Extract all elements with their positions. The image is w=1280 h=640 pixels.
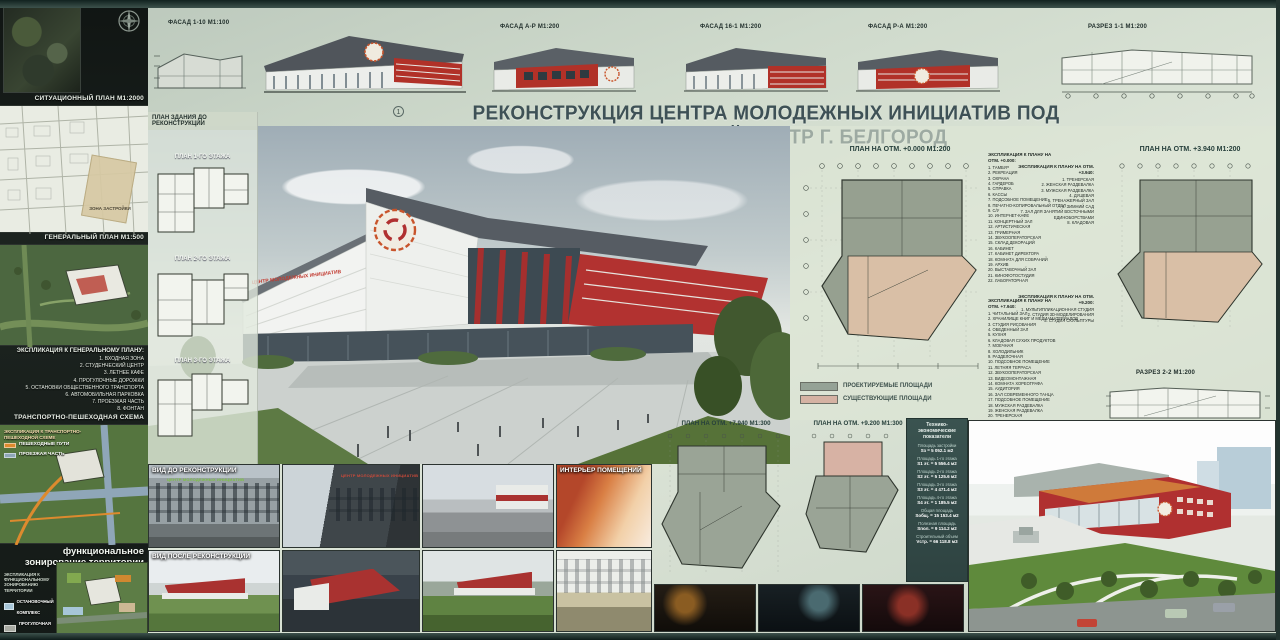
explication-3940-title: ЭКСПЛИКАЦИЯ К ПЛАНУ НА ОТМ. +3.940: [1018, 164, 1094, 175]
genplan-explication-item: 4. ПРОГУЛОЧНЫЕ ДОРОЖКИ [4, 378, 144, 385]
tech-indicator-row: Площадь 4-го этажаS4 эт. = 1 185.5 м2 [909, 495, 965, 506]
zoning-map [56, 562, 148, 636]
facade-1-10-label: ФАСАД 1-10 М1:100 [168, 20, 229, 26]
zoning-drawing [57, 563, 147, 635]
genplan-drawing [0, 245, 148, 347]
explication-3940-item: 7. ЗАЛ ДЛЯ ЗАНЯТИЙ ВОСТОЧНЫМИ ЕДИНОБОРСТ… [1018, 209, 1094, 220]
floor1-plan-drawing [155, 164, 251, 244]
situational-plan-map: ЗОНА ЗАСТРОЙКИ [0, 105, 148, 233]
sidebar: СИТУАЦИОННЫЙ ПЛАН М1:2000 ЗОНА ЗАСТРОЙКИ… [0, 0, 148, 640]
genplan-explication: ЭКСПЛИКАЦИЯ К ГЕНЕРАЛЬНОМУ ПЛАНУ: 1. ВХО… [4, 348, 144, 414]
tech-indicators-title: Технико-экономические показатели [909, 422, 965, 440]
transport-scheme-map: ЭКСПЛИКАЦИЯ К ТРАНСПОРТНО-ПЕШЕХОДНОЙ СХЕ… [0, 424, 148, 544]
aerial-render-drawing [969, 421, 1275, 631]
zoning-legend-title: ЭКСПЛИКАЦИЯ К ФУНКЦИОНАЛЬНОМУ ЗОНИРОВАНИ… [4, 572, 56, 593]
before-label: ВИД ДО РЕКОНСТРУКЦИИ [152, 467, 237, 474]
photo-after-1: ВИД ПОСЛЕ РЕКОНСТРУКЦИИ [148, 550, 280, 632]
plan-9200-drawing [798, 430, 906, 570]
plan-3940-label: ПЛАН НА ОТМ. +3.940 М1:200 [1110, 146, 1270, 153]
photo-interior-bar-2 [758, 584, 860, 632]
building-base [162, 593, 248, 599]
facade-a-r-label: ФАСАД А-Р М1:200 [500, 24, 559, 30]
situational-plan-title: СИТУАЦИОННЫЙ ПЛАН М1:2000 [0, 95, 144, 102]
genplan-map [0, 244, 148, 346]
site-zone-label: ЗОНА ЗАСТРОЙКИ [84, 206, 136, 211]
area-legend-item: СУЩЕСТВУЮЩИЕ ПЛОЩАДИ [800, 393, 932, 406]
photo-interior-2 [556, 550, 652, 632]
tech-indicator-row: Полезная площадьSпол. = 9 114.2 м2 [909, 521, 965, 532]
floor1-label: ПЛАН 1-ГО ЭТАЖА [148, 154, 257, 160]
genplan-explication-item: 5. ОСТАНОВКИ ОБЩЕСТВЕННОГО ТРАНСПОРТА [4, 385, 144, 392]
photo-interior-bar-1 [654, 584, 756, 632]
legend-swatch [4, 625, 16, 632]
area-legend-list: ПРОЕКТИРУЕМЫЕ ПЛОЩАДИСУЩЕСТВУЮЩИЕ ПЛОЩАД… [800, 380, 932, 406]
explication-7940: ЭКСПЛИКАЦИЯ К ПЛАНУ НА ОТМ. +7.940: 1. Ч… [988, 298, 1062, 419]
tech-indicator-row: Площадь 3-го этажаS3 эт. = 4 471.4 м2 [909, 482, 965, 493]
transport-legend-title: ЭКСПЛИКАЦИЯ К ТРАНСПОРТНО-ПЕШЕХОДНОЙ СХЕ… [4, 429, 96, 440]
satellite-photo [3, 5, 81, 93]
legend-label: ПРОЕКТИРУЕМЫЕ ПЛОЩАДИ [843, 380, 932, 393]
explication-3940-list: 1. ТРЕНЕРСКАЯ2. ЖЕНСКАЯ РАЗДЕВАЛКА3. МУЖ… [1018, 177, 1094, 226]
section-1-1-label: РАЗРЕЗ 1-1 М1:200 [1088, 24, 1147, 30]
building-sign-text: ЦЕНТР МОЛОДЕЖНЫХ ИНИЦИАТИВ [341, 473, 418, 478]
red-band [496, 495, 548, 502]
photo-after-2 [282, 550, 420, 632]
transport-legend-list: ПЕШЕХОДНЫЕ ПУТИПРОЕЗЖАЯ ЧАСТЬ [4, 440, 96, 460]
floor2-plan-drawing [155, 266, 251, 346]
facade-a-r-drawing [486, 40, 642, 98]
floor3-label: ПЛАН 3-ГО ЭТАЖА [148, 358, 257, 364]
board-frame-bottom [0, 633, 1280, 640]
explication-7940-item: 2. ХРАНИЛИЩЕ КНИГ И МЕДИАМАТЕРИАЛОВ [988, 316, 1062, 321]
explication-0000-title: ЭКСПЛИКАЦИЯ К ПЛАНУ НА ОТМ. +0.000: [988, 152, 1062, 163]
building-shape [294, 583, 329, 610]
indicator-value: S3 эт. = 4 471.4 м2 [909, 487, 965, 493]
legend-label: ПЕШЕХОДНЫЕ ПУТИ [19, 440, 69, 450]
section-1-1-drawing [1052, 38, 1274, 102]
board-frame-right [1276, 0, 1280, 640]
facade-main-drawing [254, 26, 472, 104]
explication-7940-item: 20. ТРЕНЕРСКАЯ [988, 413, 1062, 418]
zoning-legend: ЭКСПЛИКАЦИЯ К ФУНКЦИОНАЛЬНОМУ ЗОНИРОВАНИ… [4, 572, 56, 640]
plan-0000-drawing [798, 158, 988, 376]
photo-after-3 [422, 550, 554, 632]
explication-0000-item: 22. ЛАБОРАТОРНАЯ [988, 278, 1062, 283]
facade-16-1-label: ФАСАД 16-1 М1:200 [700, 24, 761, 30]
legend-label: ПРОЕЗЖАЯ ЧАСТЬ [19, 450, 64, 460]
building-sign-text: ЦЕНТР МОЛОДЕЖНЫХ ИНИЦИАТИВ [167, 477, 244, 482]
legend-swatch [800, 382, 838, 391]
facade-1-10-side-drawing [150, 32, 250, 100]
plan-0000-label: ПЛАН НА ОТМ. +0.000 М1:200 [820, 146, 980, 153]
board-frame-top [0, 0, 1280, 8]
transport-legend-item: ПРОЕЗЖАЯ ЧАСТЬ [4, 450, 96, 460]
photo-interior-bar-3 [862, 584, 964, 632]
photo-before-3 [422, 464, 554, 548]
indicator-value: Sпол. = 9 114.2 м2 [909, 526, 965, 532]
indicator-value: S4 эт. = 1 185.5 м2 [909, 500, 965, 506]
sheet-number-badge: 1 [393, 106, 404, 117]
tech-indicator-row: Площадь 1-го этажаS1 эт. = 5 556.4 м2 [909, 456, 965, 467]
logo-emblem [375, 210, 415, 250]
genplan-explication-item: 3. ЛЕТНЕЕ КАФЕ [4, 370, 144, 377]
floor3-plan-drawing [155, 368, 251, 448]
photo-before-2: ЦЕНТР МОЛОДЕЖНЫХ ИНИЦИАТИВ [282, 464, 420, 548]
legend-swatch [4, 453, 16, 458]
aerial-render [968, 420, 1276, 632]
tech-indicator-row: Общая площадьSобщ. = 15 153.4 м2 [909, 508, 965, 519]
tech-indicator-row: Строительный объемVстр. = 66 118.8 м3 [909, 534, 965, 545]
window-grid [329, 488, 419, 521]
legend-label: СУЩЕСТВУЮЩИЕ ПЛОЩАДИ [843, 393, 932, 406]
legend-swatch [800, 395, 838, 404]
plan-7940-label: ПЛАН НА ОТМ. +7.940 М1:300 [656, 420, 796, 427]
plans-before-title: ПЛАН ЗДАНИЯ ДО РЕКОНСТРУКЦИИ [148, 112, 257, 130]
window-grid [557, 559, 651, 593]
transport-legend: ЭКСПЛИКАЦИЯ К ТРАНСПОРТНО-ПЕШЕХОДНОЙ СХЕ… [4, 429, 96, 460]
building-base [454, 588, 535, 595]
interior-label: ИНТЕРЬЕР ПОМЕЩЕНИЙ [560, 467, 642, 474]
plan-3940-drawing [1100, 158, 1274, 344]
tech-indicators-list: Площадь застройкиSз = 5 052.1 м2Площадь … [909, 443, 965, 545]
plans-before-column: ПЛАН ЗДАНИЯ ДО РЕКОНСТРУКЦИИ ПЛАН 1-ГО Э… [148, 112, 258, 464]
legend-label: ОСТАНОВОЧНЫЙ КОМПЛЕКС [17, 596, 56, 618]
after-label: ВИД ПОСЛЕ РЕКОНСТРУКЦИИ [152, 553, 250, 560]
tech-indicator-row: Площадь 2-го этажаS2 эт. = 5 125.6 м2 [909, 469, 965, 480]
tech-indicator-row: Площадь застройкиSз = 5 052.1 м2 [909, 443, 965, 454]
indicator-value: S1 эт. = 5 556.4 м2 [909, 461, 965, 467]
indicator-value: Sобщ. = 15 153.4 м2 [909, 513, 965, 519]
tech-indicators-panel: Технико-экономические показатели Площадь… [906, 418, 968, 582]
transport-legend-item: ПЕШЕХОДНЫЕ ПУТИ [4, 440, 96, 450]
explication-3940: ЭКСПЛИКАЦИЯ К ПЛАНУ НА ОТМ. +3.940: 1. Т… [1018, 164, 1094, 225]
legend-swatch [4, 443, 16, 448]
photo-before-1: ВИД ДО РЕКОНСТРУКЦИИ ЦЕНТР МОЛОДЕЖНЫХ ИН… [148, 464, 280, 548]
presentation-board: СИТУАЦИОННЫЙ ПЛАН М1:2000 ЗОНА ЗАСТРОЙКИ… [0, 0, 1280, 640]
compass-icon [116, 8, 142, 34]
floor2-label: ПЛАН 2-ГО ЭТАЖА [148, 256, 257, 262]
plan-7940-drawing [654, 430, 790, 580]
genplan-explication-title: ЭКСПЛИКАЦИЯ К ГЕНЕРАЛЬНОМУ ПЛАНУ: [4, 348, 144, 354]
section-2-2-drawing [1104, 378, 1272, 426]
facade-16-1-drawing [676, 38, 836, 98]
facade-r-a-drawing [850, 42, 1006, 98]
legend-swatch [4, 603, 14, 610]
transport-scheme-title: ТРАНСПОРТНО-ПЕШЕХОДНАЯ СХЕМА [0, 414, 144, 421]
explication-3940-item: 8. КЛАДОВАЯ [1018, 220, 1094, 225]
genplan-explication-item: 8. ФОНТАН [4, 406, 144, 413]
window-grid [149, 483, 279, 522]
genplan-title: ГЕНЕРАЛЬНЫЙ ПЛАН М1:500 [0, 234, 144, 241]
genplan-explication-list: 1. ВХОДНАЯ ЗОНА2. СТУДЕНЧЕСКИЙ ЦЕНТР3. Л… [4, 356, 144, 414]
facade-r-a-label: ФАСАД Р-А М1:200 [868, 24, 927, 30]
zoning-legend-item: ОСТАНОВОЧНЫЙ КОМПЛЕКС [4, 596, 56, 618]
indicator-value: Sз = 5 052.1 м2 [909, 448, 965, 454]
area-legend: ПРОЕКТИРУЕМЫЕ ПЛОЩАДИСУЩЕСТВУЮЩИЕ ПЛОЩАД… [800, 380, 932, 406]
photo-interior-1: ИНТЕРЬЕР ПОМЕЩЕНИЙ [556, 464, 652, 548]
explication-7940-title: ЭКСПЛИКАЦИЯ К ПЛАНУ НА ОТМ. +7.940: [988, 298, 1062, 309]
indicator-value: S2 эт. = 5 125.6 м2 [909, 474, 965, 480]
area-legend-item: ПРОЕКТИРУЕМЫЕ ПЛОЩАДИ [800, 380, 932, 393]
indicator-value: Vстр. = 66 118.8 м3 [909, 539, 965, 545]
section-2-2-label: РАЗРЕЗ 2-2 М1:200 [1136, 370, 1195, 376]
explication-7940-list: 1. ЧИТАЛЬНЫЙ ЗАЛ2. ХРАНИЛИЩЕ КНИГ И МЕДИ… [988, 311, 1062, 419]
